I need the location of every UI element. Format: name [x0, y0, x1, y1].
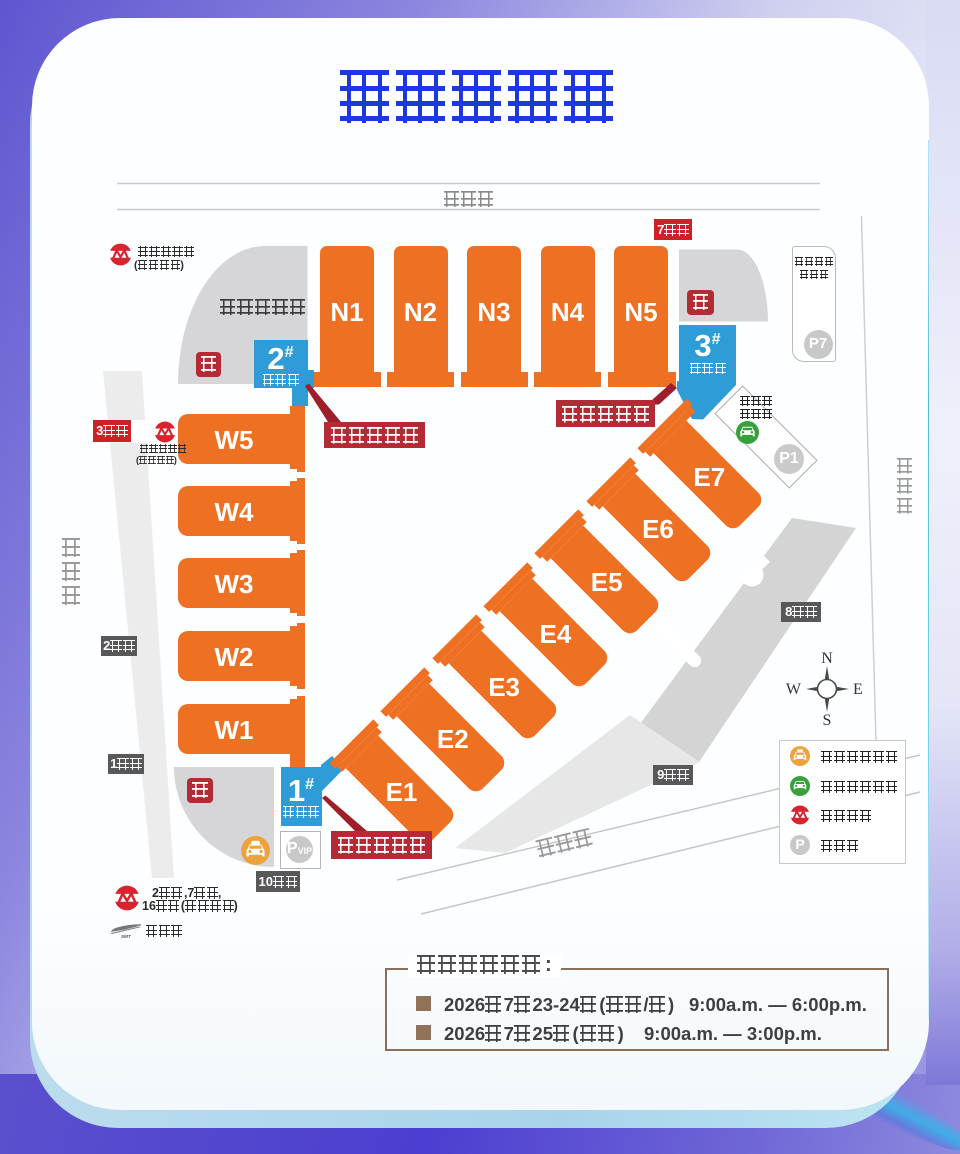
svg-text:W: W: [786, 681, 802, 698]
svg-text:S: S: [823, 712, 832, 728]
svg-text:SMT: SMT: [121, 934, 132, 939]
svg-text:N: N: [821, 650, 833, 667]
svg-text:E: E: [853, 681, 863, 698]
